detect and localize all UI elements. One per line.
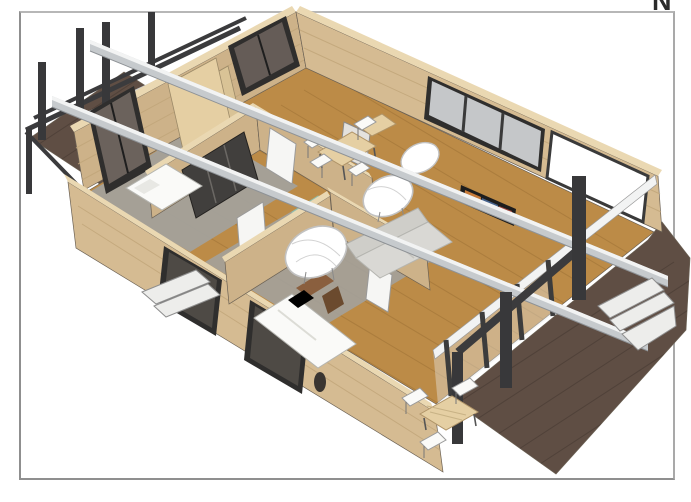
pergola-post: [38, 62, 46, 140]
cropped-corner-letter: N: [652, 0, 672, 17]
east-pergola-post: [572, 176, 586, 300]
document-page: N: [0, 0, 691, 502]
pergola-post: [102, 22, 110, 106]
pergola-post: [26, 128, 32, 194]
wall-knob: [314, 372, 326, 392]
architectural-rendering: [0, 0, 691, 502]
east-pergola-post: [500, 292, 512, 388]
pergola-post: [148, 12, 155, 66]
pergola-post: [76, 28, 84, 116]
